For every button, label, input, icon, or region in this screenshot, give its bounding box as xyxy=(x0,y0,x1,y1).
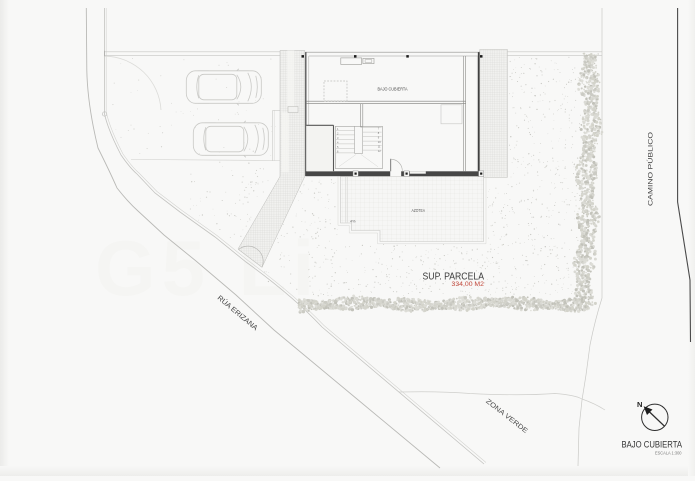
svg-text:N: N xyxy=(637,400,642,409)
svg-text:AZOTEA: AZOTEA xyxy=(412,208,426,214)
svg-text:334,00 M2: 334,00 M2 xyxy=(452,281,485,288)
svg-text:4%: 4% xyxy=(350,220,356,224)
svg-text:G5 Li: G5 Li xyxy=(95,224,320,312)
svg-text:ESCALA 1:300: ESCALA 1:300 xyxy=(655,450,682,455)
svg-text:CAMINO PÚBLICO: CAMINO PÚBLICO xyxy=(646,132,655,206)
svg-text:BAJO CUBIERTA: BAJO CUBIERTA xyxy=(622,438,683,449)
svg-text:BAJO CUBIERTA: BAJO CUBIERTA xyxy=(378,87,409,93)
